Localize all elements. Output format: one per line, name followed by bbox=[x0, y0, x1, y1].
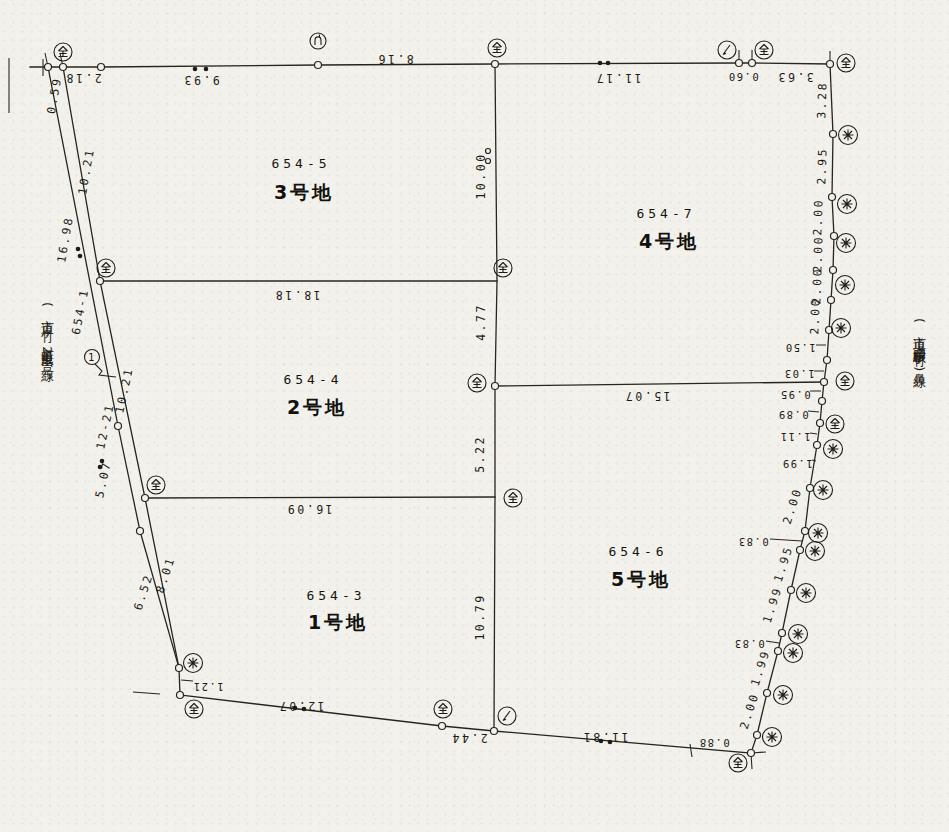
marker-stamp-icon bbox=[837, 54, 855, 72]
road-name-left: (市道 竹ヶ鼻町東出2号線) bbox=[38, 302, 56, 368]
dim-center-0: 10.00 bbox=[474, 152, 488, 199]
dim-right-14: 1.95 bbox=[771, 544, 796, 584]
marker-stamp-icon bbox=[836, 372, 854, 390]
dimension-labels: 2.18 9.93 8.16 11.17 0.60 3.63 3.28 2.95… bbox=[44, 52, 830, 749]
dim-center-1: 4.77 bbox=[474, 303, 488, 341]
marker-stake-icon bbox=[824, 440, 843, 459]
dim-cross-0: 18.18 bbox=[273, 288, 320, 302]
dim-bottom-1: 2.44 bbox=[450, 731, 488, 745]
marker-stamp-icon bbox=[729, 754, 747, 772]
dim-center-2: 5.22 bbox=[473, 435, 487, 473]
dim-right-6: 1.50 bbox=[784, 342, 815, 354]
boundary-marker-icons bbox=[54, 33, 858, 772]
parcel-654-3-number: 654-3 bbox=[306, 588, 365, 603]
dim-right-18: 2.00 bbox=[737, 691, 762, 731]
dim-left-0: 0.59 bbox=[44, 76, 64, 116]
survey-plat-drawing: 1 2.18 9.93 8.16 11.17 0.60 3.63 3.28 2.… bbox=[0, 0, 949, 832]
dim-cross-1: 15.07 bbox=[623, 389, 670, 403]
marker-stamp-icon bbox=[97, 259, 115, 277]
parcel-boundary-lines bbox=[30, 63, 834, 753]
marker-stake-icon bbox=[797, 584, 816, 603]
dim-right-12: 2.00 bbox=[780, 486, 805, 526]
marker-stake-icon bbox=[763, 728, 782, 747]
scanned-survey-plat-page: 1 2.18 9.93 8.16 11.17 0.60 3.63 3.28 2.… bbox=[0, 0, 949, 832]
dim-cross-2: 16.09 bbox=[285, 502, 332, 516]
survey-points bbox=[45, 60, 838, 757]
dim-right-13: 0.83 bbox=[737, 536, 768, 548]
parcel-654-7-name: 4号地 bbox=[639, 229, 699, 255]
parcel-654-3-name: 1号地 bbox=[308, 610, 368, 636]
dim-right-19: 0.88 bbox=[698, 737, 729, 749]
marker-stamp-icon bbox=[504, 489, 522, 507]
dim-bottom-2: 12.07 bbox=[277, 699, 324, 713]
road-point-1-label: 1 bbox=[88, 351, 96, 363]
road-lot-number: 654-1 bbox=[69, 287, 92, 336]
marker-stamp-icon bbox=[468, 374, 486, 392]
marker-pin-icon bbox=[498, 707, 516, 725]
dim-right-0: 3.28 bbox=[814, 81, 829, 119]
marker-stamp-icon bbox=[185, 700, 203, 718]
marker-stake-icon bbox=[784, 644, 803, 663]
parcel-654-6-number: 654-6 bbox=[608, 544, 667, 559]
dim-left-5: 6.52 bbox=[131, 572, 156, 612]
marker-stake-icon bbox=[832, 319, 851, 338]
marker-stamp-icon bbox=[147, 476, 165, 494]
dim-right-10: 1.11 bbox=[779, 431, 810, 443]
road-point-1: 1 bbox=[85, 350, 117, 378]
marker-pin-icon bbox=[718, 41, 736, 59]
marker-stake-icon bbox=[806, 542, 825, 561]
dim-bottom-3: 1.21 bbox=[192, 681, 223, 693]
road-name-right: (市道 南彦根駅竹ヶ鼻線) bbox=[910, 318, 928, 373]
dim-right-17: 1.99 bbox=[748, 648, 773, 688]
parcel-654-5-number: 654-5 bbox=[271, 156, 330, 171]
dim-right-11: 1.99 bbox=[781, 458, 812, 470]
marker-stake-icon bbox=[837, 234, 856, 253]
marker-stamp-icon bbox=[755, 41, 773, 59]
marker-stamp-icon bbox=[488, 39, 506, 57]
dim-top-2: 8.16 bbox=[376, 52, 414, 66]
dim-right-5: 2.00 bbox=[807, 297, 822, 335]
dim-top-5: 3.63 bbox=[776, 70, 814, 84]
marker-stake-icon bbox=[839, 126, 858, 145]
dim-right-7: 1.03 bbox=[783, 368, 814, 380]
marker-stamp-icon bbox=[434, 700, 452, 718]
dim-left-4: 5.07 bbox=[92, 459, 114, 499]
dim-bottom-0: 11.81 bbox=[581, 730, 628, 744]
dim-top-4: 0.60 bbox=[727, 71, 758, 83]
marker-stake-icon bbox=[789, 625, 808, 644]
marker-stake-icon bbox=[838, 195, 857, 214]
dim-right-9: 0.89 bbox=[777, 409, 808, 421]
parcel-654-4-name: 2号地 bbox=[287, 395, 347, 421]
marker-stake-icon bbox=[774, 686, 793, 705]
marker-stake-icon bbox=[809, 524, 828, 543]
dim-left-2: 16.98 bbox=[54, 215, 76, 264]
dim-top-1: 9.93 bbox=[182, 73, 220, 87]
marker-stamp-icon bbox=[826, 415, 844, 433]
marker-stake-icon bbox=[814, 481, 833, 500]
dim-right-2: 2.00 bbox=[810, 198, 825, 236]
dim-right-15: 1.99 bbox=[760, 585, 785, 625]
marker-nail-icon bbox=[310, 33, 326, 49]
marker-stake-icon bbox=[184, 654, 203, 673]
marker-stamp-icon bbox=[54, 43, 72, 61]
parcel-654-7-number: 654-7 bbox=[636, 206, 695, 221]
dim-top-0: 2.18 bbox=[64, 71, 102, 85]
dim-right-8: 0.95 bbox=[779, 389, 810, 401]
parcel-654-5-name: 3号地 bbox=[274, 180, 334, 206]
construction-ticks bbox=[43, 50, 830, 769]
dim-top-3: 11.17 bbox=[594, 71, 641, 85]
parcel-654-6-name: 5号地 bbox=[611, 567, 671, 593]
marker-stake-icon bbox=[836, 276, 855, 295]
dim-center-3: 10.79 bbox=[473, 593, 487, 640]
parcel-654-4-number: 654-4 bbox=[283, 372, 342, 387]
adjacent-lot-number: 12-21 bbox=[93, 402, 116, 451]
dim-right-1: 2.95 bbox=[814, 147, 829, 185]
dim-left-6: 8.01 bbox=[153, 555, 178, 595]
